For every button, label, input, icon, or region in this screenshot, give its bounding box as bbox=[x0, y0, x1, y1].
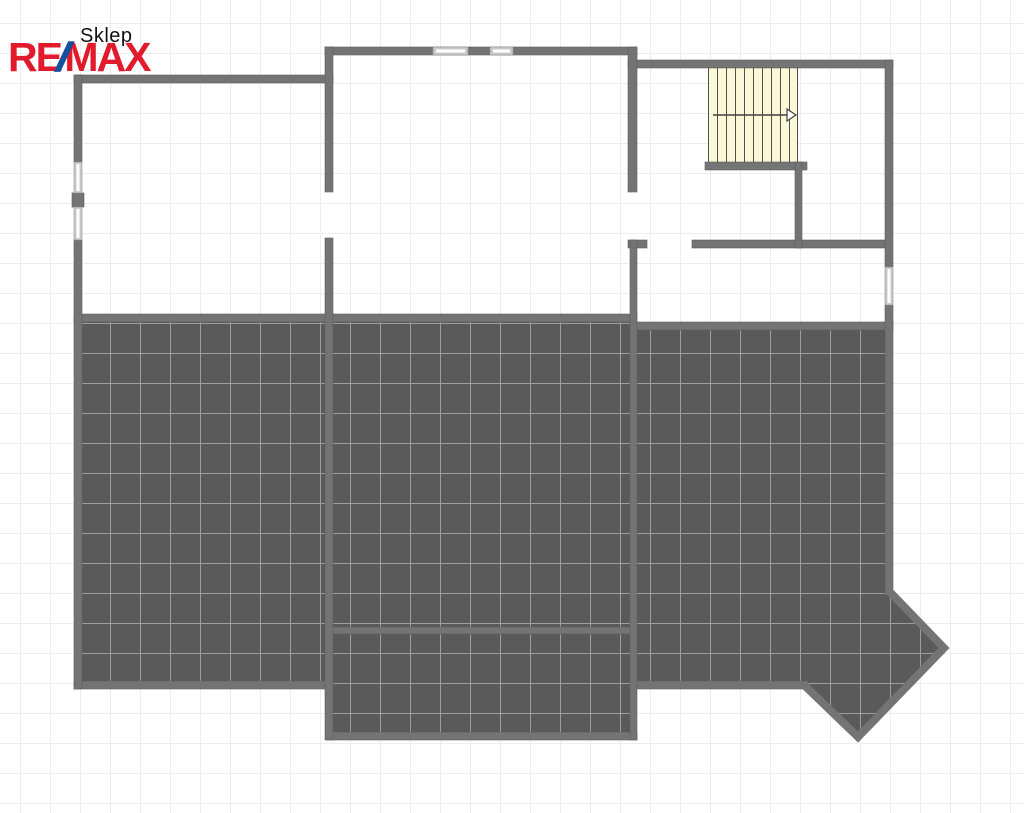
window-top-2 bbox=[490, 47, 513, 55]
wall-segment bbox=[325, 238, 333, 740]
floor-plan-page: Sklep RE/MAX bbox=[0, 0, 1024, 813]
window-left-2 bbox=[74, 207, 82, 240]
wall-segment bbox=[628, 60, 893, 68]
wall-segment bbox=[885, 60, 893, 267]
wall-segment bbox=[74, 314, 637, 322]
wall-segment bbox=[327, 732, 637, 740]
window-left-1 bbox=[74, 162, 82, 193]
wall-segment bbox=[327, 627, 637, 634]
wall-segment-beside-stairs bbox=[795, 162, 802, 248]
wall-segment bbox=[692, 240, 889, 248]
tiled-zone-middle bbox=[329, 318, 633, 631]
wall-segment bbox=[885, 305, 893, 595]
remax-logo: Sklep RE/MAX bbox=[8, 24, 208, 84]
remax-wordmark: RE/MAX bbox=[8, 37, 149, 78]
wall-segment bbox=[325, 47, 637, 55]
wall-segment bbox=[630, 240, 637, 740]
staircase bbox=[708, 67, 798, 162]
wall-segment bbox=[628, 47, 637, 192]
logo-max: MAX bbox=[64, 34, 149, 80]
tiled-floor-zones bbox=[78, 318, 944, 737]
tiled-zone-middle-extension bbox=[329, 630, 633, 736]
wall-segment bbox=[630, 322, 893, 330]
wall-segment bbox=[630, 681, 808, 689]
wall-segment bbox=[74, 75, 82, 162]
tiled-zone-left bbox=[78, 318, 329, 685]
window-right bbox=[885, 267, 893, 305]
wall-segment bbox=[74, 681, 333, 689]
wall-pier bbox=[72, 193, 84, 207]
wall-segment bbox=[325, 47, 333, 192]
window-top-1 bbox=[433, 47, 468, 55]
floor-plan bbox=[0, 0, 1024, 813]
wall-segment bbox=[74, 240, 82, 689]
wall-segment-under-stairs bbox=[705, 162, 807, 170]
